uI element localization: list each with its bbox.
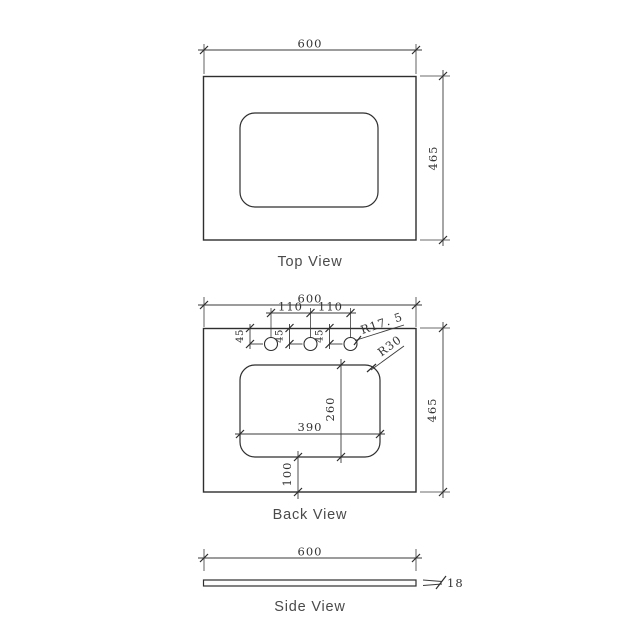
side-view-thickness-dimension: 18 [423,576,464,590]
basin-depth-value: 260 [323,397,337,422]
top-view-height-dimension: 465 [420,70,450,246]
side-view-slab [204,580,417,586]
technical-drawing-page: 600 465 Top View 600 [0,0,640,640]
side-view: 600 18 Side View [198,545,464,616]
hole-spacing-value-1: 110 [278,300,303,314]
top-view-height-value: 465 [426,146,440,171]
side-view-thickness-value: 18 [447,576,464,590]
back-view-label: Back View [273,507,348,523]
drawing-svg: 600 465 Top View 600 [0,0,640,640]
top-view-outer-rect [204,77,417,241]
basin-width-value: 390 [298,420,323,434]
hole-spacing-value-2: 110 [318,300,343,314]
back-view: 600 465 110 110 [198,292,450,524]
top-view-width-value: 600 [298,37,323,51]
side-view-label: Side View [274,599,345,615]
hole-offset-value-3: 45 [315,329,326,343]
top-view-width-dimension: 600 [198,37,422,75]
hole-offset-value-2: 45 [275,329,286,343]
top-view: 600 465 Top View [198,37,450,271]
dim-tick [436,576,446,589]
basin-bottom-offset-value: 100 [280,462,294,487]
side-view-width-dimension: 600 [198,545,422,572]
hole-offset-value-1: 45 [235,329,246,343]
back-view-height-dimension: 465 [420,322,450,498]
top-view-label: Top View [278,254,343,270]
side-view-width-value: 600 [298,545,323,559]
back-view-height-value: 465 [425,398,439,423]
